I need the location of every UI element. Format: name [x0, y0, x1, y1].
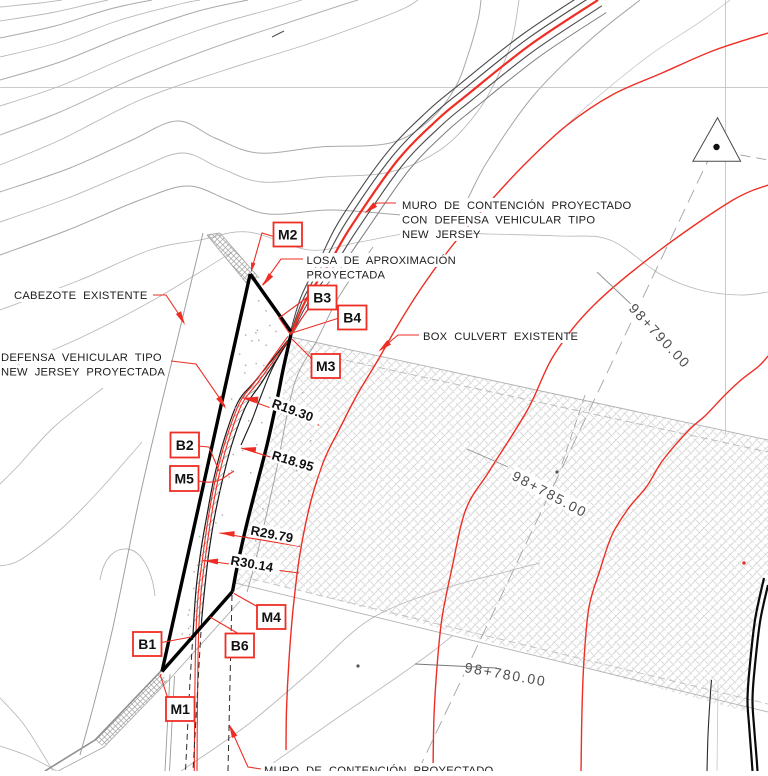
svg-text:CON DEFENSA VEHICULAR TIPO: CON DEFENSA VEHICULAR TIPO: [402, 215, 595, 227]
svg-text:NEW JERSEY PROYECTADA: NEW JERSEY PROYECTADA: [1, 367, 165, 379]
svg-text:B1: B1: [138, 636, 156, 652]
svg-text:LOSA DE APROXIMACIÓN: LOSA DE APROXIMACIÓN: [307, 254, 456, 267]
svg-text:NEW JERSEY: NEW JERSEY: [402, 229, 481, 241]
svg-text:B4: B4: [343, 310, 361, 326]
svg-text:DEFENSA VEHICULAR TIPO: DEFENSA VEHICULAR TIPO: [1, 352, 162, 364]
svg-text:B3: B3: [313, 290, 331, 306]
svg-text:M5: M5: [175, 471, 195, 487]
svg-text:M2: M2: [278, 227, 298, 243]
svg-text:M3: M3: [316, 358, 336, 374]
svg-text:BOX CULVERT EXISTENTE: BOX CULVERT EXISTENTE: [423, 331, 578, 343]
svg-text:CABEZOTE EXISTENTE: CABEZOTE EXISTENTE: [14, 290, 148, 302]
svg-text:B2: B2: [176, 437, 194, 453]
svg-text:B6: B6: [231, 638, 249, 654]
svg-text:PROYECTADA: PROYECTADA: [307, 270, 386, 282]
svg-text:M4: M4: [262, 609, 282, 625]
svg-text:M1: M1: [171, 701, 191, 717]
svg-text:MURO DE CONTENCIÓN PROYECTADO: MURO DE CONTENCIÓN PROYECTADO: [402, 199, 632, 212]
svg-text:MURO DE CONTENCIÓN PROYECTADO: MURO DE CONTENCIÓN PROYECTADO: [264, 764, 494, 771]
